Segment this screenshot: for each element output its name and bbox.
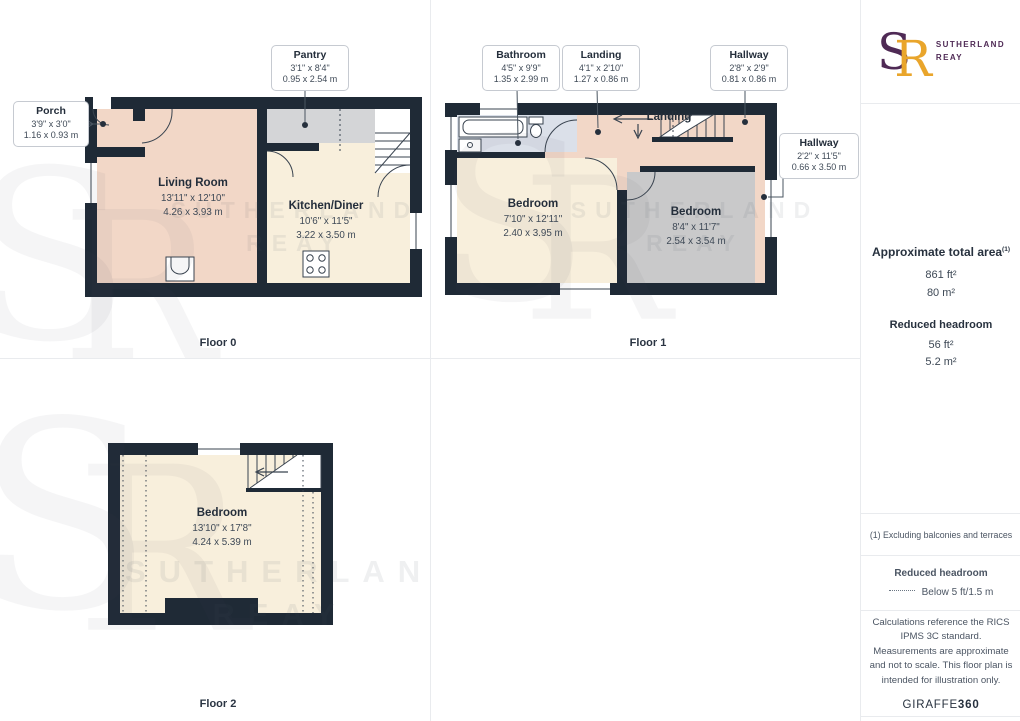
total-area-title: Approximate total area(1) bbox=[872, 245, 1010, 259]
floor2-caption: Floor 2 bbox=[200, 698, 237, 710]
floor2-stairs-icon bbox=[246, 455, 321, 492]
stove-icon bbox=[303, 251, 329, 277]
bedroom-right-label: Bedroom 8'4" x 11'7" 2.54 x 3.54 m bbox=[666, 204, 725, 249]
floor2-window bbox=[198, 443, 240, 455]
dotted-line-key bbox=[889, 590, 915, 591]
reduced-headroom-title: Reduced headroom bbox=[890, 319, 993, 331]
empty-panel bbox=[430, 358, 860, 721]
landing-callout: Landing 4'1" x 2'10" 1.27 x 0.86 m bbox=[562, 45, 640, 91]
floorplan-page: SR SUTHERLANDREAY bbox=[0, 0, 1020, 721]
hallway-top-callout: Hallway 2'8" x 2'9" 0.81 x 0.86 m bbox=[710, 45, 788, 91]
reduced-headroom-sqft: 56 ft² bbox=[928, 337, 953, 355]
legend-title: Reduced headroom bbox=[894, 568, 987, 579]
disclaimer-text: Calculations reference the RICS IPMS 3C … bbox=[861, 616, 1020, 688]
porch-callout: Porch 3'9" x 3'0" 1.16 x 0.93 m bbox=[13, 101, 89, 147]
hallway-right-callout: Hallway 2'2" x 11'5" 0.66 x 3.50 m bbox=[779, 133, 859, 179]
landing-inline-label: Landing bbox=[647, 111, 692, 123]
floor0-pantry-area bbox=[267, 109, 375, 143]
info-sidebar: S R SUTHERLAND REAY Approximate total ar… bbox=[860, 0, 1020, 721]
pantry-callout: Pantry 3'1" x 8'4" 0.95 x 2.54 m bbox=[271, 45, 349, 91]
floor0-stairs-icon bbox=[375, 109, 410, 173]
brand-logo-section: S R SUTHERLAND REAY bbox=[861, 0, 1020, 104]
logo-letter-r: R bbox=[894, 34, 932, 84]
reduced-headroom-sqm: 5.2 m² bbox=[925, 354, 956, 372]
total-area-sqft: 861 ft² bbox=[925, 267, 956, 285]
legend-section: Reduced headroom Below 5 ft/1.5 m bbox=[861, 556, 1020, 611]
chimney-breast bbox=[165, 598, 258, 613]
area-summary-section: Approximate total area(1) 861 ft² 80 m² … bbox=[861, 104, 1020, 514]
footnote-section: (1) Excluding balconies and terraces bbox=[861, 514, 1020, 556]
sink-icon bbox=[166, 257, 194, 281]
toilet-icon bbox=[529, 117, 543, 138]
floor1-caption: Floor 1 bbox=[630, 337, 667, 349]
floor0-caption: Floor 0 bbox=[200, 337, 237, 349]
giraffe360-wordmark: GIRAFFE360 bbox=[902, 699, 979, 711]
disclaimer-section: Calculations reference the RICS IPMS 3C … bbox=[861, 611, 1020, 717]
sutherland-reay-logo: S R SUTHERLAND REAY bbox=[877, 27, 1005, 77]
legend-row: Below 5 ft/1.5 m bbox=[889, 587, 994, 598]
kitchen-diner-label: Kitchen/Diner 10'6" x 11'5" 3.22 x 3.50 … bbox=[289, 198, 364, 243]
total-area-sqm: 80 m² bbox=[927, 285, 955, 303]
floor2-bedroom-label: Bedroom 13'10" x 17'8" 4.24 x 5.39 m bbox=[192, 505, 251, 550]
bathroom-callout: Bathroom 4'5" x 9'9" 1.35 x 2.99 m bbox=[482, 45, 560, 91]
brand-name: SUTHERLAND REAY bbox=[936, 39, 1005, 64]
porch-wall bbox=[85, 147, 145, 157]
footnote-marker: (1) bbox=[1002, 246, 1010, 253]
legend-value: Below 5 ft/1.5 m bbox=[922, 587, 994, 598]
bedroom-left-label: Bedroom 7'10" x 12'11" 2.40 x 3.95 m bbox=[503, 196, 562, 241]
living-room-label: Living Room 13'11" x 12'10" 4.26 x 3.93 … bbox=[158, 175, 228, 220]
balconies-footnote: (1) Excluding balconies and terraces bbox=[866, 530, 1016, 540]
